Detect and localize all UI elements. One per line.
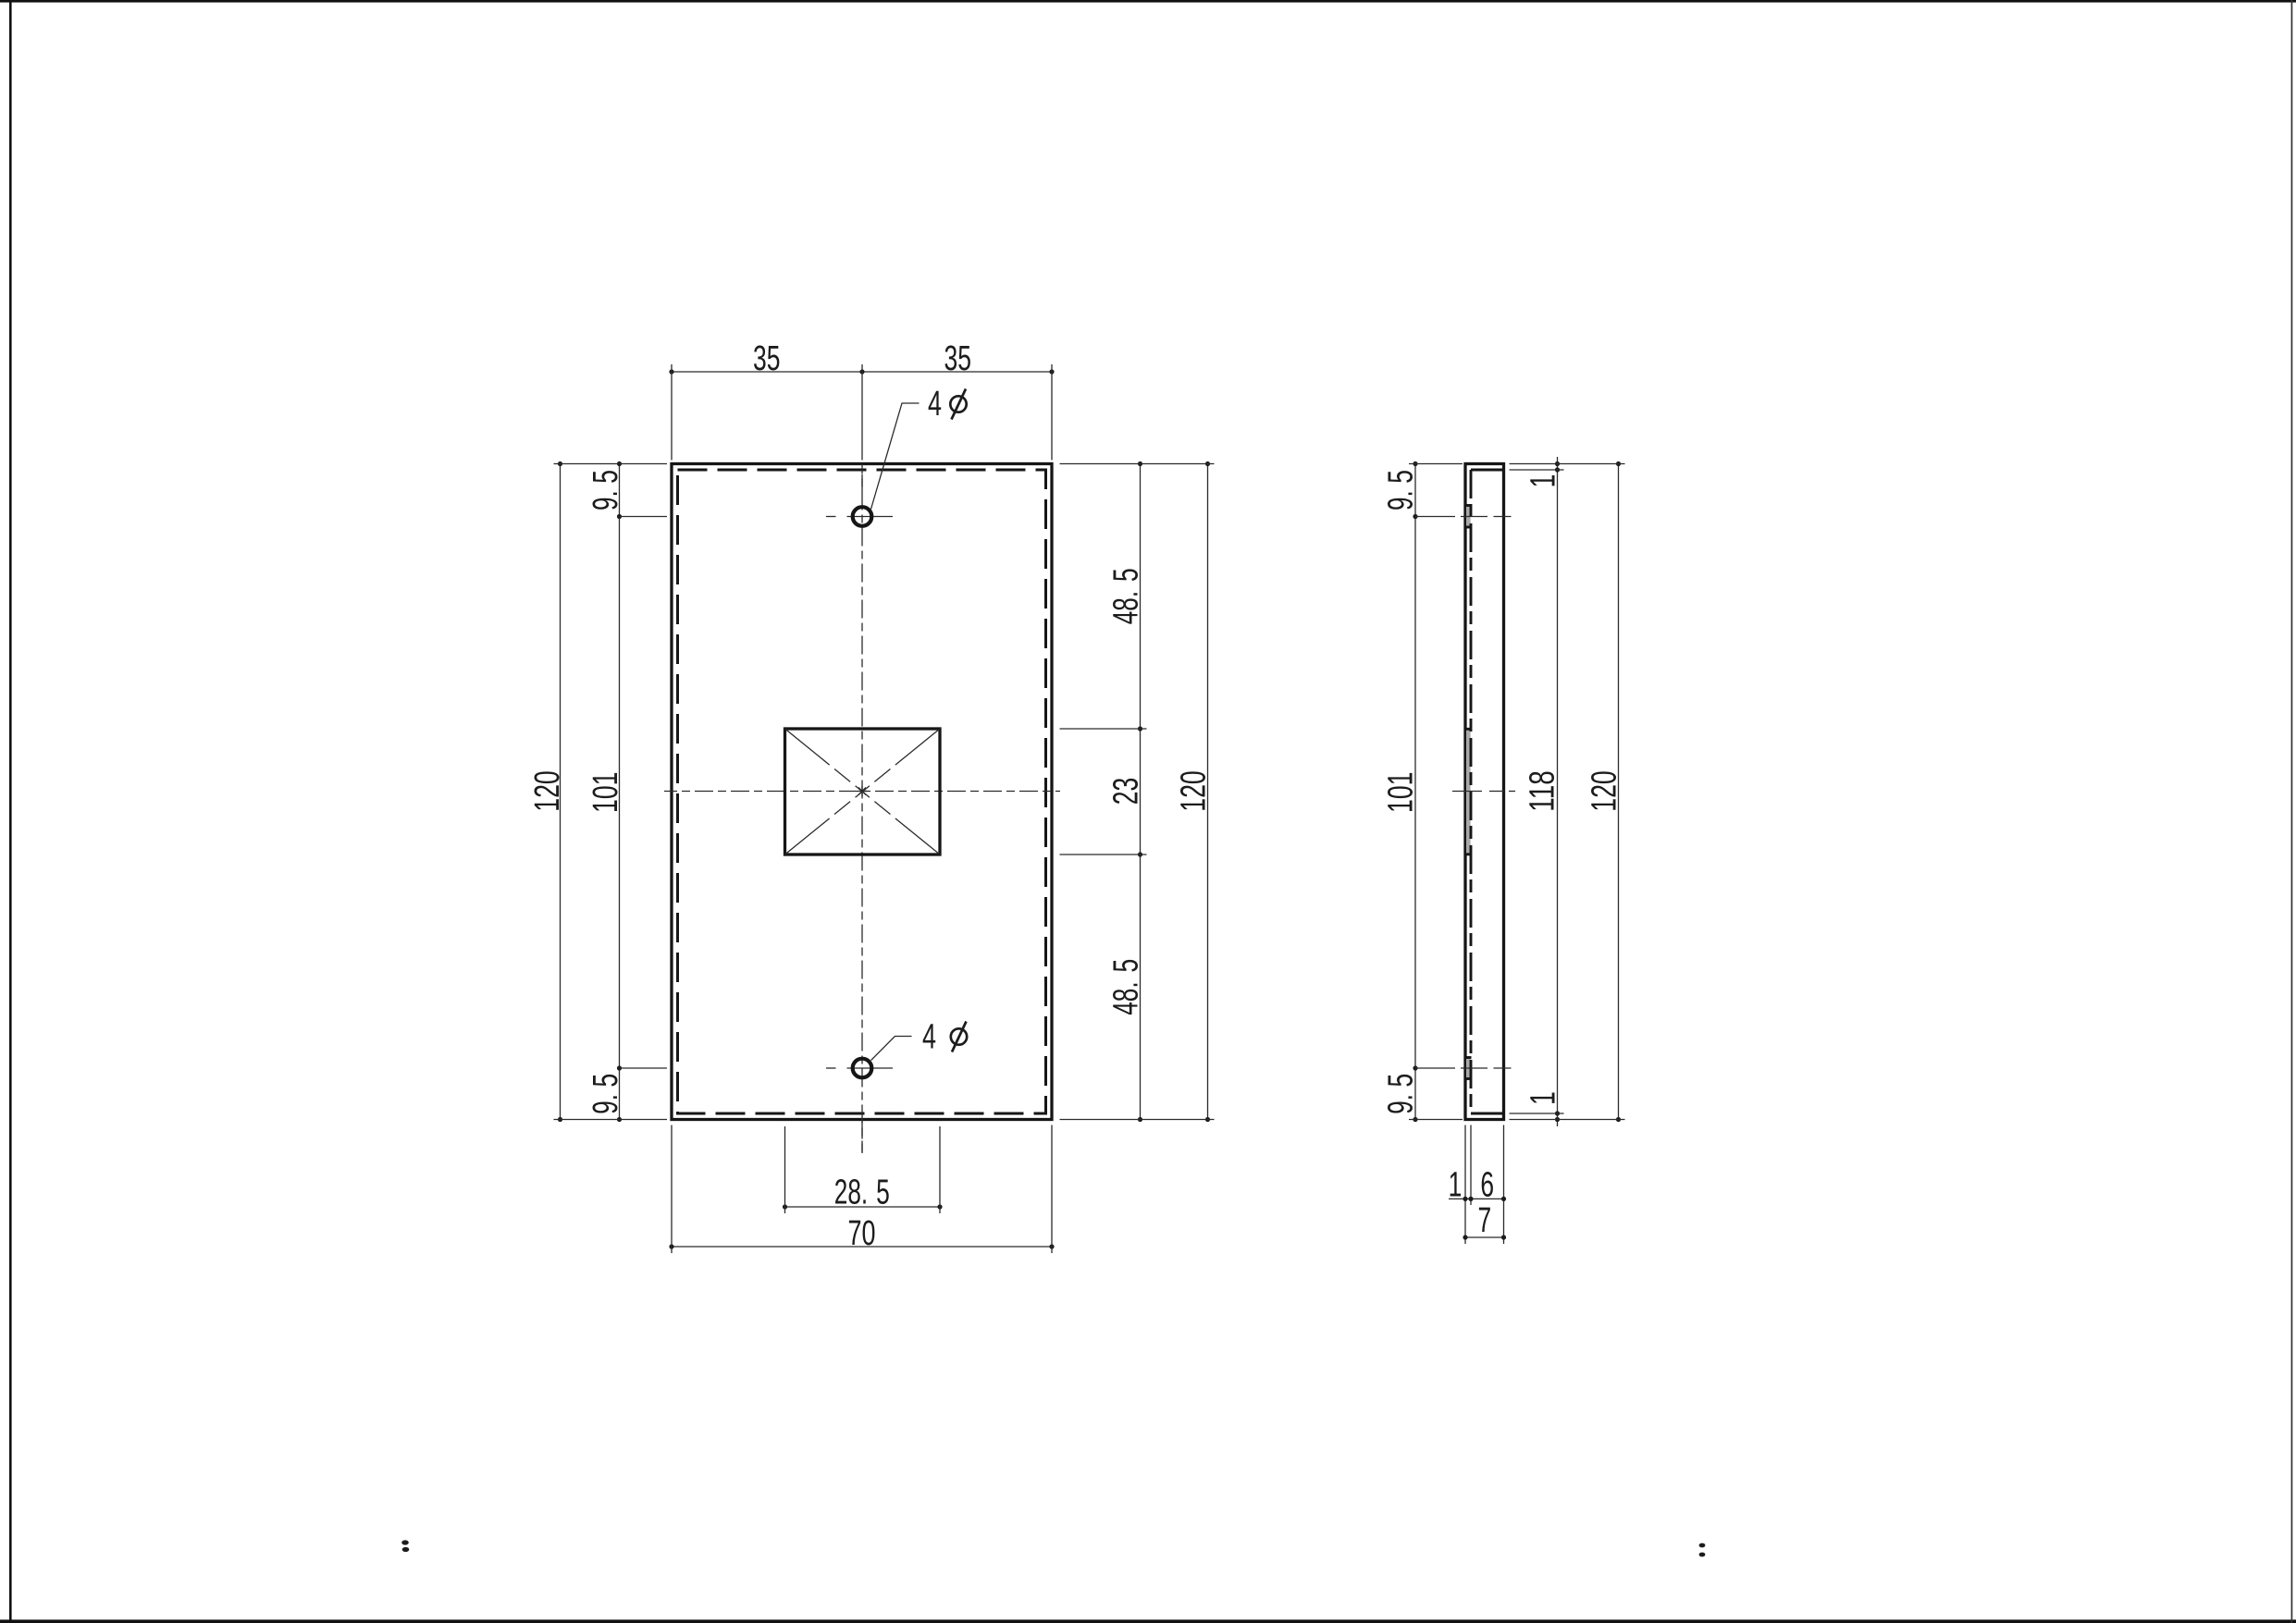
svg-text:35: 35 xyxy=(753,339,781,378)
svg-text:9.: 9. xyxy=(586,490,625,510)
svg-text:5: 5 xyxy=(1107,568,1146,582)
svg-text:1: 1 xyxy=(1524,474,1563,488)
svg-text:120: 120 xyxy=(528,770,567,812)
svg-text:101: 101 xyxy=(586,772,625,814)
svg-text:9.: 9. xyxy=(1382,1094,1421,1114)
svg-text:1: 1 xyxy=(1449,1166,1463,1205)
svg-text:5: 5 xyxy=(586,1074,625,1088)
svg-text:5: 5 xyxy=(1382,470,1421,484)
svg-text:70: 70 xyxy=(848,1214,876,1253)
svg-text:9.: 9. xyxy=(586,1094,625,1114)
svg-text:28.: 28. xyxy=(834,1174,868,1212)
svg-text:23: 23 xyxy=(1107,778,1146,805)
svg-text:35: 35 xyxy=(944,339,972,378)
svg-text:48.: 48. xyxy=(1107,591,1146,624)
svg-text:4: 4 xyxy=(922,1018,936,1057)
svg-text:5: 5 xyxy=(1107,959,1146,973)
svg-text:120: 120 xyxy=(1586,770,1624,812)
svg-text:118: 118 xyxy=(1524,770,1562,812)
svg-text:9.: 9. xyxy=(1382,490,1421,510)
svg-text:5: 5 xyxy=(586,470,625,484)
svg-text:48.: 48. xyxy=(1107,981,1146,1014)
svg-text:4: 4 xyxy=(928,385,942,424)
svg-text:1: 1 xyxy=(1524,1091,1563,1105)
svg-text:5: 5 xyxy=(1382,1074,1421,1088)
svg-text:6: 6 xyxy=(1480,1166,1494,1205)
svg-text:101: 101 xyxy=(1382,772,1421,814)
svg-text:7: 7 xyxy=(1477,1201,1491,1240)
svg-text:120: 120 xyxy=(1175,770,1214,812)
svg-text:5: 5 xyxy=(876,1174,890,1212)
